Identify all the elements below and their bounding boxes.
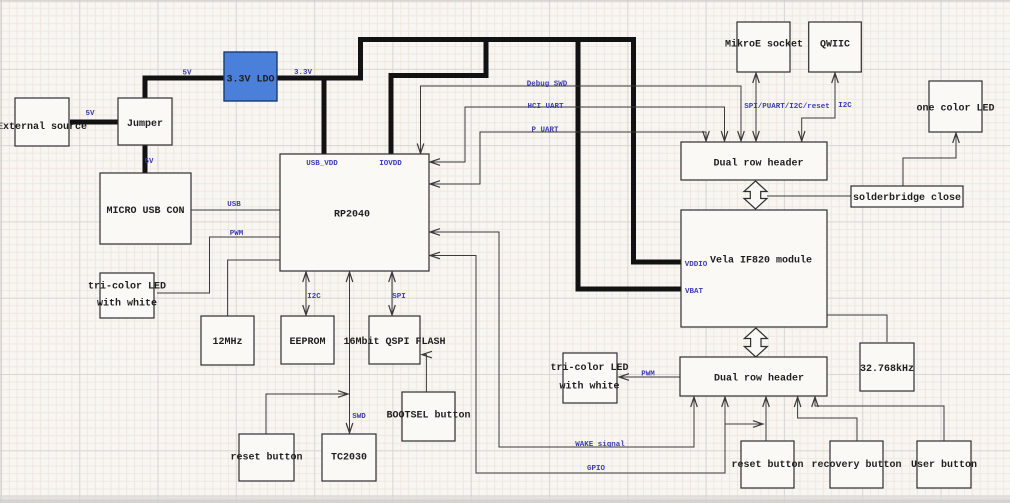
svg-text:HCI UART: HCI UART: [527, 103, 564, 111]
svg-text:3.3V: 3.3V: [294, 69, 313, 77]
svg-text:VDDIO: VDDIO: [685, 261, 708, 269]
svg-text:MikroE socket: MikroE socket: [725, 39, 803, 51]
svg-text:User button: User button: [911, 459, 977, 471]
svg-text:USB_VDD: USB_VDD: [306, 160, 338, 168]
svg-text:12MHz: 12MHz: [212, 337, 242, 348]
svg-text:USB: USB: [227, 201, 241, 209]
svg-text:tri-color LED: tri-color LED: [88, 281, 166, 293]
svg-text:VBAT: VBAT: [685, 288, 704, 296]
svg-text:tri-color LED: tri-color LED: [550, 362, 628, 374]
svg-text:Dual row header: Dual row header: [714, 373, 804, 385]
svg-text:reset button: reset button: [731, 459, 803, 471]
svg-text:QWIIC: QWIIC: [820, 40, 850, 51]
svg-text:External source: External source: [0, 121, 87, 133]
svg-text:Debug SWD: Debug SWD: [527, 81, 568, 89]
svg-text:reset button: reset button: [230, 452, 302, 464]
svg-text:Jumper: Jumper: [127, 119, 163, 130]
svg-text:EEPROM: EEPROM: [289, 337, 325, 348]
svg-text:I2C: I2C: [307, 293, 321, 301]
svg-text:SWD: SWD: [352, 413, 366, 421]
svg-text:RP2040: RP2040: [334, 210, 370, 221]
svg-text:recovery button: recovery button: [811, 459, 901, 471]
svg-text:solderbridge close: solderbridge close: [853, 192, 961, 204]
svg-text:Dual row header: Dual row header: [713, 158, 803, 170]
svg-text:SPI: SPI: [392, 293, 406, 301]
svg-text:PWM: PWM: [230, 230, 244, 238]
svg-text:5V: 5V: [144, 158, 154, 166]
svg-text:SPI/PUART/I2C/reset: SPI/PUART/I2C/reset: [744, 103, 830, 111]
svg-text:with white: with white: [559, 381, 619, 393]
svg-text:TC2030: TC2030: [331, 453, 367, 464]
svg-text:I2C: I2C: [838, 102, 852, 110]
svg-text:32.768kHz: 32.768kHz: [860, 363, 914, 375]
svg-text:IOVDD: IOVDD: [379, 160, 402, 168]
svg-text:WAKE signal: WAKE signal: [575, 441, 625, 449]
svg-text:3.3V LDO: 3.3V LDO: [226, 75, 274, 86]
svg-text:with white: with white: [97, 298, 157, 310]
svg-text:P UART: P UART: [531, 127, 559, 135]
svg-text:Vela IF820 module: Vela IF820 module: [710, 255, 812, 267]
svg-text:5V: 5V: [85, 110, 95, 118]
svg-text:GPIO: GPIO: [587, 465, 606, 473]
svg-text:one color LED: one color LED: [916, 103, 994, 115]
svg-text:BOOTSEL button: BOOTSEL button: [386, 410, 470, 422]
svg-text:5V: 5V: [182, 70, 192, 78]
svg-text:PWM: PWM: [641, 371, 655, 379]
svg-text:16Mbit QSPI FLASH: 16Mbit QSPI FLASH: [343, 336, 445, 348]
svg-text:MICRO USB CON: MICRO USB CON: [106, 206, 184, 217]
